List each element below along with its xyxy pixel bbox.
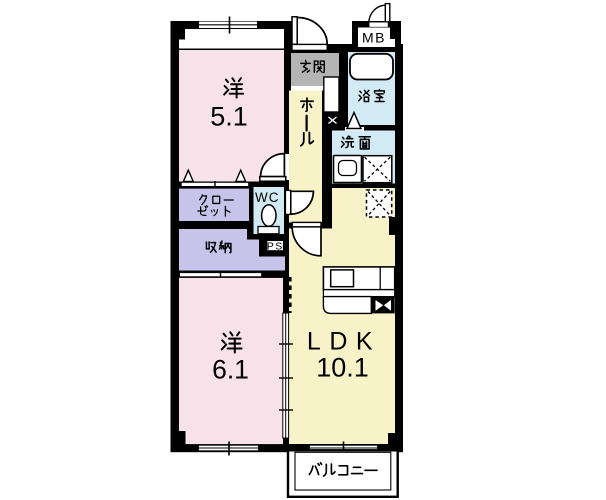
svg-text:MB: MB xyxy=(362,30,386,46)
svg-text:WC: WC xyxy=(255,190,280,205)
svg-text:5.1: 5.1 xyxy=(210,102,248,132)
svg-text:6.1: 6.1 xyxy=(212,355,249,385)
svg-text:10.1: 10.1 xyxy=(316,353,369,383)
svg-text:LDK: LDK xyxy=(307,328,381,356)
svg-text:PS: PS xyxy=(267,241,284,253)
